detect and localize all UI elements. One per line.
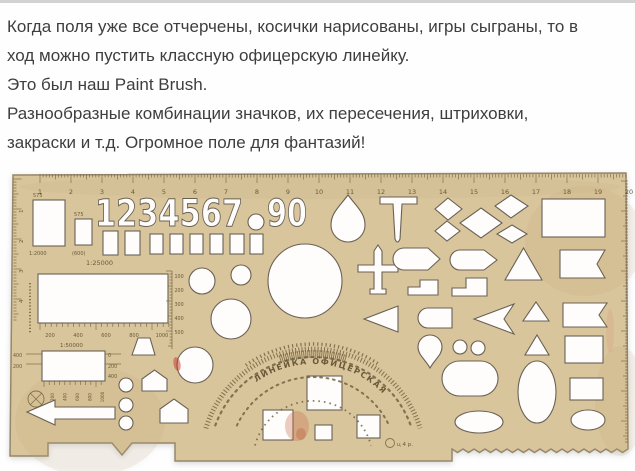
degree-circle: [248, 214, 264, 230]
cutout-circle: [119, 398, 133, 412]
top-ruler-numbers: 15: [470, 188, 478, 196]
ellipse-tall: [518, 361, 556, 423]
cutout-rect: [210, 234, 223, 254]
cutout-rect: [250, 234, 263, 254]
rect-large-right: [542, 199, 605, 237]
price-mark: ц 4 р.: [397, 442, 413, 448]
meter-scale: 400: [73, 333, 83, 339]
meter-scale: 600: [101, 333, 111, 339]
ink-stain: [606, 309, 614, 353]
cutout-rect: [103, 231, 118, 255]
top-ruler-numbers: 9: [286, 188, 290, 196]
scale-label: 1:2000: [29, 251, 47, 257]
cutout-rect: [170, 234, 183, 254]
scale-label: 1:25000: [86, 259, 113, 267]
cutout-circle: [177, 347, 213, 383]
top-ruler-numbers: 18: [563, 188, 571, 196]
digits-1-7: 1234567: [95, 192, 243, 235]
scale-label: 1:50000: [60, 343, 83, 349]
cutout-rect: [150, 234, 163, 254]
circle-large: [268, 244, 342, 318]
meter-scale: 800: [129, 333, 139, 339]
cutout-rect: [230, 234, 244, 254]
top-ruler-numbers: 3: [100, 188, 104, 196]
left-ruler-numbers: 4: [19, 299, 25, 303]
left-ruler-numbers: 3: [19, 269, 25, 273]
top-ruler-numbers: 17: [532, 188, 540, 196]
vertical-scale: 500: [175, 330, 184, 336]
mark-text: 400: [108, 374, 117, 380]
top-ruler-numbers: 8: [255, 188, 259, 196]
map-frame-25000: [38, 274, 168, 323]
vertical-scale: 200: [175, 288, 184, 294]
stencil-svg: 1234567901234567891011121314151617181920…: [0, 171, 635, 471]
page: Когда поля уже все отчерчены, косички на…: [0, 0, 635, 468]
top-ruler-numbers: 19: [594, 188, 602, 196]
vertical-scale: 100: [175, 274, 184, 280]
top-ruler-numbers: 12: [377, 188, 385, 196]
map-frame-50000: [42, 351, 105, 381]
mark-text: 575: [33, 193, 43, 199]
meter-scale-rotated: 400: [63, 393, 68, 401]
pill: [418, 308, 452, 328]
square: [357, 415, 380, 438]
stadium: [442, 361, 498, 396]
window-small: [75, 219, 92, 245]
meter-scale-rotated: 800: [88, 393, 93, 401]
cutout-circle: [231, 265, 251, 285]
cutout-circle: [119, 416, 133, 430]
square: [307, 376, 342, 410]
cutout-rect: [125, 231, 140, 255]
cutout-circle: [453, 340, 467, 354]
cutout-rect: [570, 378, 603, 400]
meter-scale: 200: [45, 333, 55, 339]
square-tiny: [315, 425, 332, 440]
text-line: Это был наш Paint Brush.: [7, 70, 631, 99]
cutout-ellipse: [455, 411, 503, 433]
meter-scale-rotated: 600: [75, 393, 80, 401]
cutout-ellipse: [571, 410, 605, 430]
top-ruler-numbers: 10: [315, 188, 323, 196]
top-ruler-numbers: 7: [224, 188, 228, 196]
left-ruler-numbers: 2: [19, 240, 25, 244]
meter-scale-rotated: 1000: [100, 391, 105, 402]
cutout-circle: [471, 341, 485, 355]
meter-scale: 1000: [156, 333, 169, 339]
top-ruler-numbers: 2: [69, 188, 73, 196]
top-ruler-numbers: 4: [131, 188, 135, 196]
text-line: Когда поля уже все отчерчены, косички на…: [7, 12, 631, 41]
mark-text: 575: [74, 212, 84, 218]
vertical-scale: 400: [175, 316, 184, 322]
top-ruler-numbers: 5: [162, 188, 166, 196]
left-ruler-numbers: 1: [19, 210, 25, 214]
cutout-circle: [189, 268, 215, 294]
mark-text: 200: [108, 364, 117, 370]
mark-text: (600): [72, 251, 85, 257]
top-ruler-numbers: 13: [408, 188, 416, 196]
text-line: Разнообразные комбинации значков, их пер…: [7, 99, 631, 128]
ink-stain: [296, 428, 306, 440]
officer-ruler-photo: 1234567901234567891011121314151617181920…: [0, 171, 635, 471]
top-ruler-numbers: 6: [193, 188, 197, 196]
meter-scale-rotated: 200: [50, 393, 55, 401]
intro-text: Когда поля уже все отчерчены, косички на…: [0, 3, 635, 157]
top-ruler-numbers: 14: [439, 188, 447, 196]
text-line: закраски и т.д. Огромное поле для фантаз…: [7, 128, 631, 157]
mark-text: 400: [13, 353, 22, 359]
digits-9-0: 90: [267, 192, 307, 235]
vertical-scale: 300: [175, 302, 184, 308]
top-ruler-numbers: 16: [501, 188, 509, 196]
mark-text: 200: [13, 364, 22, 370]
text-line: ход можно пустить классную офицерскую ли…: [7, 41, 631, 70]
cutout-circle: [119, 378, 133, 392]
cutout-rect: [565, 336, 603, 363]
window-large: [33, 200, 65, 246]
top-ruler-numbers: 20: [625, 188, 633, 196]
cutout-circle: [211, 299, 251, 339]
cutout-rect: [190, 234, 203, 254]
top-ruler-numbers: 11: [346, 188, 354, 196]
